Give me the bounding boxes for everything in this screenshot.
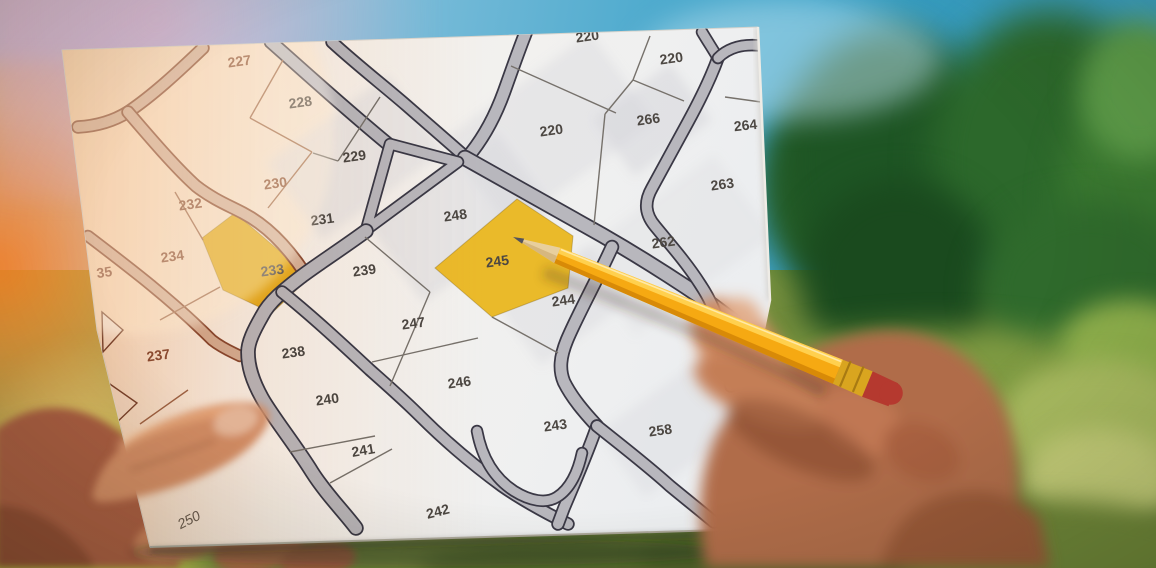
scene-artwork: 2272282292302322312343523323923723824024… — [0, 0, 1156, 568]
parcel-label: 264 — [733, 116, 758, 134]
parcel-label: 245 — [485, 251, 511, 270]
pencil-eraser-end — [879, 381, 903, 405]
parcel-label: 243 — [543, 415, 569, 434]
parcel-label: 263 — [710, 174, 736, 193]
parcel-label: 220 — [659, 48, 685, 67]
parcel-label: 266 — [636, 109, 662, 128]
parcel-label: 262 — [651, 232, 677, 251]
parcel-label: 220 — [575, 26, 601, 45]
parcel-label: 244 — [551, 290, 577, 309]
photo-scene: 2272282292302322312343523323923723824024… — [0, 0, 1156, 568]
parcel-label: 220 — [539, 120, 565, 139]
parcel-label: 258 — [648, 420, 674, 439]
